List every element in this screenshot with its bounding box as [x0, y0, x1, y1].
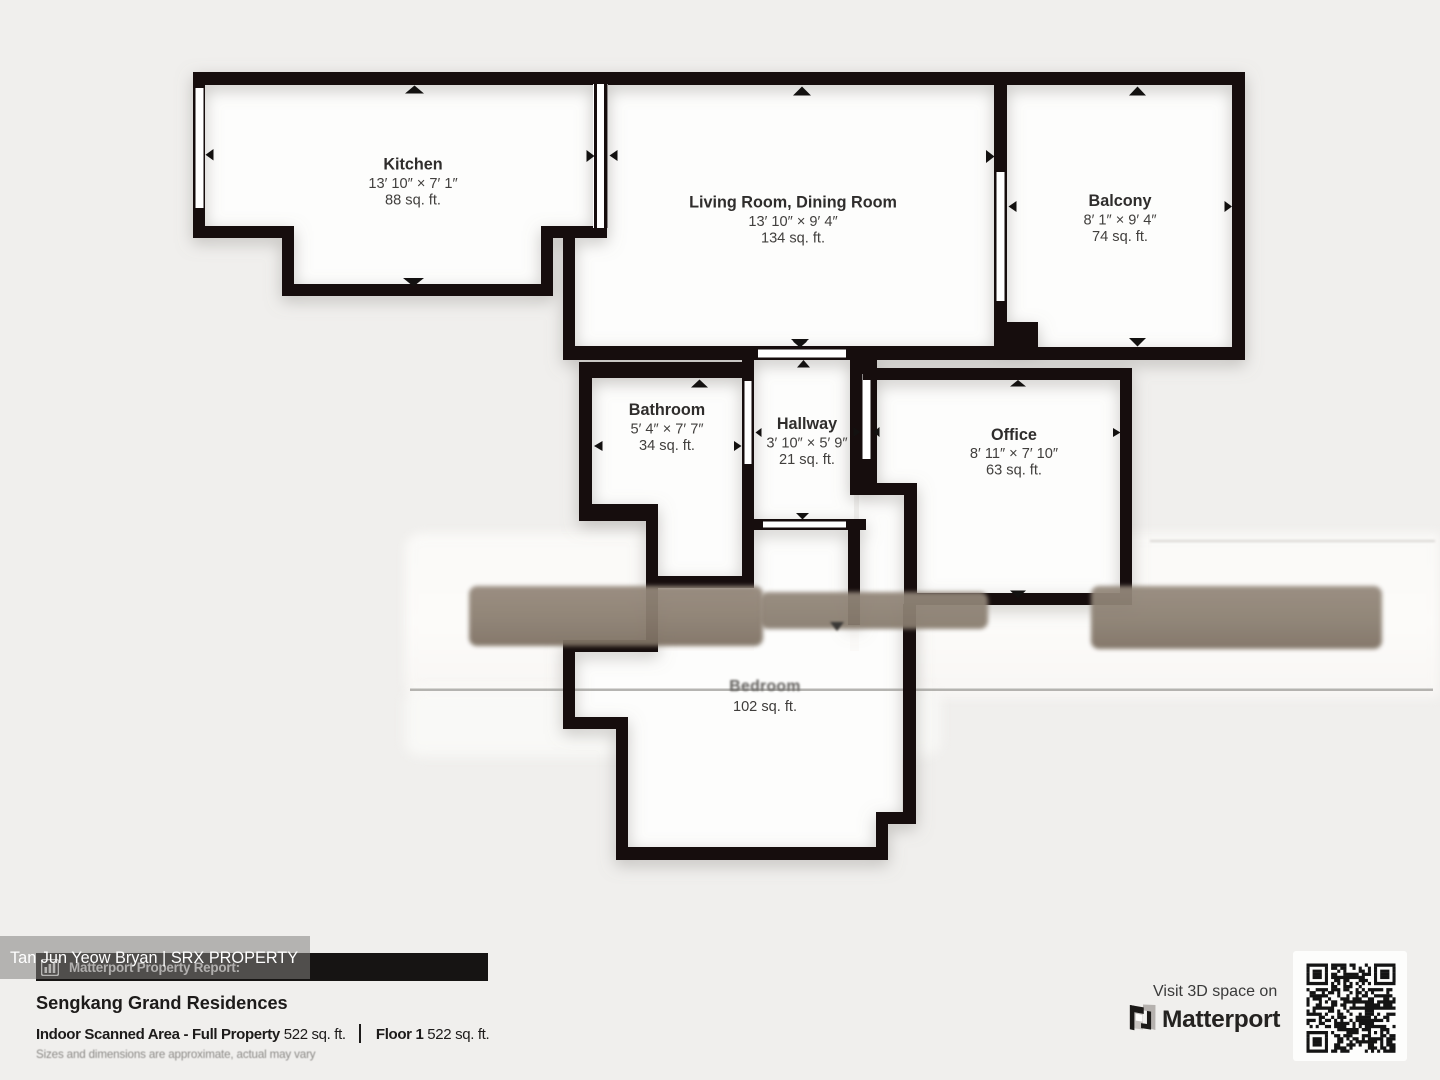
- svg-text:13′ 10″ × 9′ 4″: 13′ 10″ × 9′ 4″: [748, 214, 837, 230]
- svg-text:34 sq. ft.: 34 sq. ft.: [639, 438, 695, 454]
- svg-text:21 sq. ft.: 21 sq. ft.: [779, 452, 835, 468]
- svg-text:5′ 4″ × 7′ 7″: 5′ 4″ × 7′ 7″: [630, 422, 703, 438]
- svg-text:3′ 10″ × 5′ 9″: 3′ 10″ × 5′ 9″: [766, 436, 847, 452]
- svg-text:Balcony: Balcony: [1089, 192, 1152, 210]
- svg-text:Living Room, Dining Room: Living Room, Dining Room: [689, 194, 897, 212]
- svg-text:8′ 11″ × 7′ 10″: 8′ 11″ × 7′ 10″: [970, 446, 1058, 462]
- svg-text:Hallway: Hallway: [777, 415, 837, 433]
- svg-text:13′ 10″ × 7′ 1″: 13′ 10″ × 7′ 1″: [368, 176, 457, 192]
- svg-text:8′ 1″ × 9′ 4″: 8′ 1″ × 9′ 4″: [1083, 213, 1156, 229]
- svg-text:63 sq. ft.: 63 sq. ft.: [986, 463, 1042, 479]
- svg-text:Kitchen: Kitchen: [383, 156, 442, 174]
- svg-text:Bathroom: Bathroom: [629, 401, 705, 419]
- svg-text:74 sq. ft.: 74 sq. ft.: [1092, 229, 1148, 245]
- svg-text:134 sq. ft.: 134 sq. ft.: [761, 231, 825, 247]
- svg-text:Office: Office: [991, 426, 1037, 444]
- svg-text:88 sq. ft.: 88 sq. ft.: [385, 193, 441, 209]
